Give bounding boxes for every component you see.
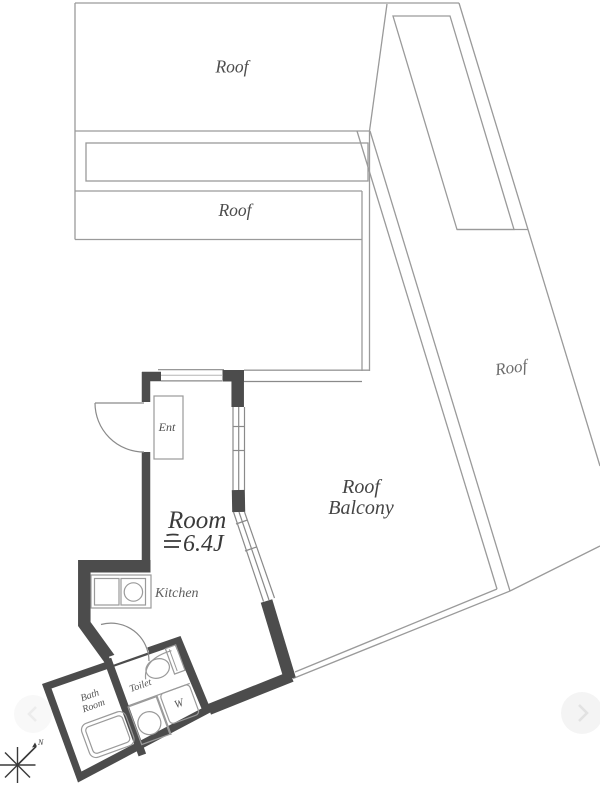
svg-text:Roof: Roof: [493, 356, 531, 380]
svg-text:N: N: [37, 738, 44, 747]
svg-text:Roof: Roof: [341, 476, 382, 498]
svg-text:Roof: Roof: [217, 200, 253, 220]
svg-text:Roof: Roof: [214, 57, 250, 77]
svg-text:Room: Room: [167, 507, 226, 534]
svg-text:Ent: Ent: [158, 420, 176, 434]
svg-text:6.4J: 6.4J: [183, 531, 225, 557]
svg-text:Kitchen: Kitchen: [154, 586, 199, 601]
svg-text:Balcony: Balcony: [328, 497, 394, 519]
